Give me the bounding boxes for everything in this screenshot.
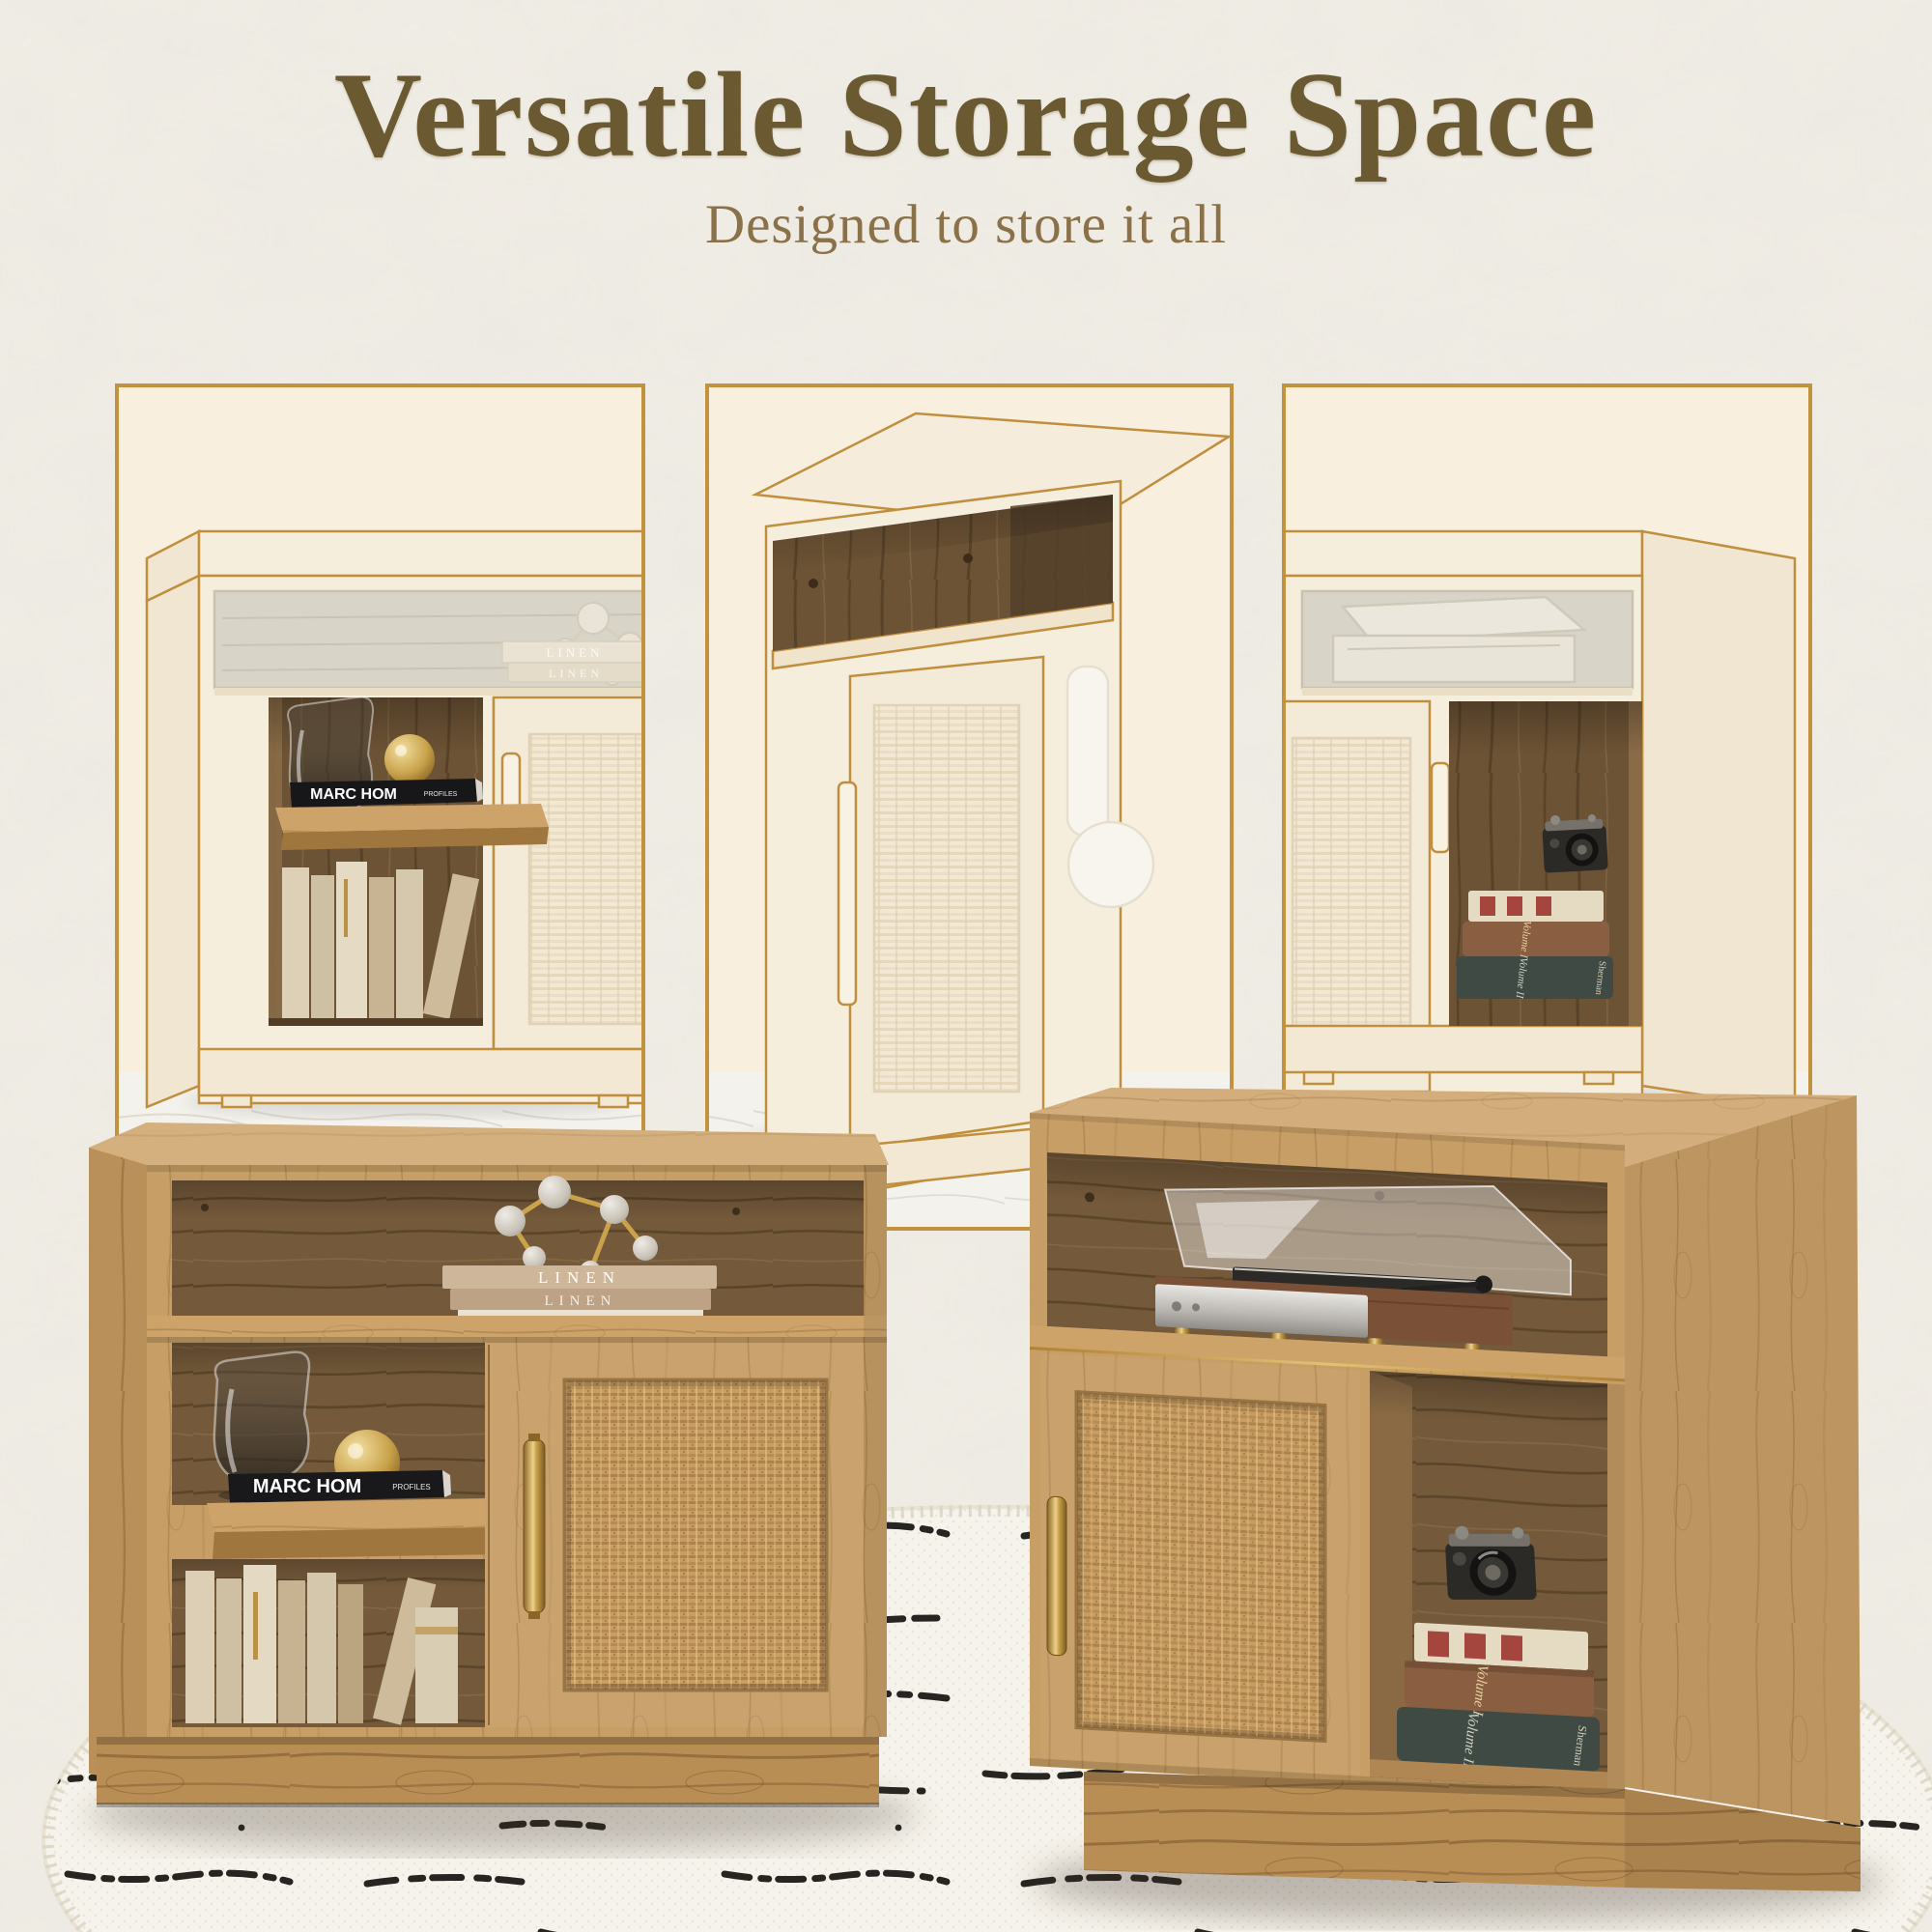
rattan-door <box>1041 1353 1360 1776</box>
cabinet-plinth <box>97 1737 879 1804</box>
scene: LINEN LINEN MARC HOM PROFILES <box>0 0 1932 1932</box>
ghost-vase <box>1067 667 1108 836</box>
marc-hom-label: MARC HOM <box>253 1476 361 1497</box>
profiles-label: PROFILES <box>392 1483 431 1492</box>
ghost-rattan-door <box>1293 738 1410 1053</box>
storage-cabinet-front-view: LINEN LINEN MARC HOM PROFILES <box>89 1122 889 1807</box>
ghost-door-handle <box>838 782 856 1005</box>
ghost-turntable <box>1333 597 1584 682</box>
brass-handle <box>524 1439 545 1613</box>
cabinet-front: Volume I Volume II Sherman <box>1030 1113 1625 1798</box>
vintage-camera <box>1542 812 1608 872</box>
cabinet-side-panel <box>89 1122 147 1785</box>
storage-cabinet-angled-view: Volume I Volume II Sherman <box>1030 1088 1861 1891</box>
rattan-door <box>485 1343 864 1727</box>
antique-books <box>185 1565 458 1725</box>
ghost-rattan-door <box>874 705 1019 1092</box>
linen-label-bottom: LINEN <box>545 1293 617 1309</box>
vintage-camera <box>1444 1526 1537 1600</box>
linen-books: LINEN LINEN <box>442 1265 717 1316</box>
highlight-side-compartment: Volume I Volume II Sherman <box>1449 701 1642 1026</box>
open-middle-compartment: MARC HOM PROFILES <box>172 1343 485 1505</box>
profiles-label: PROFILES <box>424 791 458 798</box>
ghost-linen-label-bottom: LINEN <box>549 667 603 680</box>
ghost-lamp <box>1068 822 1153 907</box>
brass-orb <box>384 734 435 784</box>
open-top-shelf <box>1047 1152 1607 1359</box>
ghost-linen-label-top: LINEN <box>547 645 604 660</box>
antique-books <box>269 862 483 1026</box>
marc-hom-label: MARC HOM <box>310 786 397 803</box>
product-infographic: Versatile Storage Space Designed to stor… <box>0 0 1932 1932</box>
ghost-door-handle <box>1432 763 1449 852</box>
linen-label-top: LINEN <box>538 1268 621 1287</box>
book-stack: Volume I Volume II Sherman <box>1457 891 1613 1000</box>
book-stack: Volume I Volume II Sherman <box>1397 1622 1600 1776</box>
open-top-shelf: LINEN LINEN <box>172 1176 864 1316</box>
brass-handle <box>1047 1496 1066 1656</box>
feature-panel-left: LINEN LINEN MARC HOM PROFILES <box>117 385 676 1229</box>
open-bottom-compartment <box>172 1559 485 1727</box>
open-side-compartment: Volume I Volume II Sherman <box>1370 1371 1607 1789</box>
